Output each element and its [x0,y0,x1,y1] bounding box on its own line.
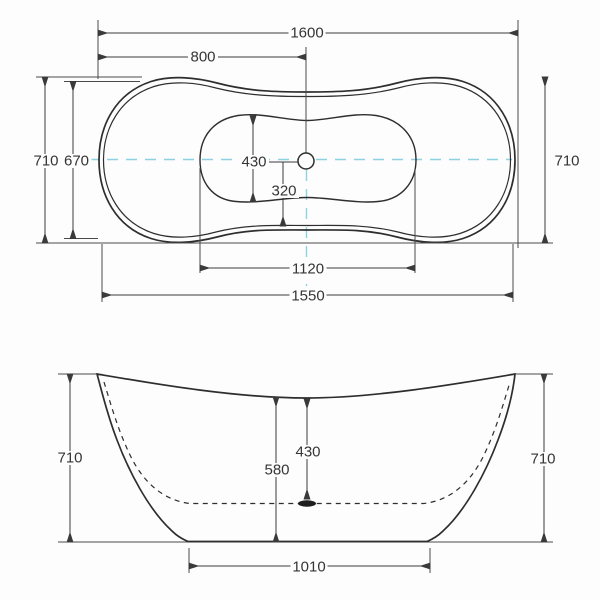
dim-label-base-length: 1010 [292,559,325,576]
dim-label-rim-length: 1550 [291,288,324,305]
dim-label-height-left: 710 [57,450,82,467]
dim-label-width-left-outer: 710 [33,153,58,170]
dim-label-height-right: 710 [530,451,555,468]
drain-mark [298,500,316,506]
drain-hole [298,153,314,169]
drawing-canvas: 1600 800 710 670 710 430 320 1120 1550 7… [0,0,600,600]
dim-label-inner-depth: 580 [264,462,289,479]
dim-label-width-right: 710 [554,153,579,170]
technical-drawing: 1600 800 710 670 710 430 320 1120 1550 7… [0,0,600,600]
dim-label-basin-width: 430 [241,154,266,171]
dim-label-overall-length: 1600 [290,25,323,42]
dim-label-width-left-inner: 670 [64,153,89,170]
dim-label-drain-depth: 430 [295,444,320,461]
dim-label-drain-offset: 320 [271,183,296,200]
dim-label-half-length: 800 [190,49,215,66]
dim-label-basin-length: 1120 [292,261,324,278]
